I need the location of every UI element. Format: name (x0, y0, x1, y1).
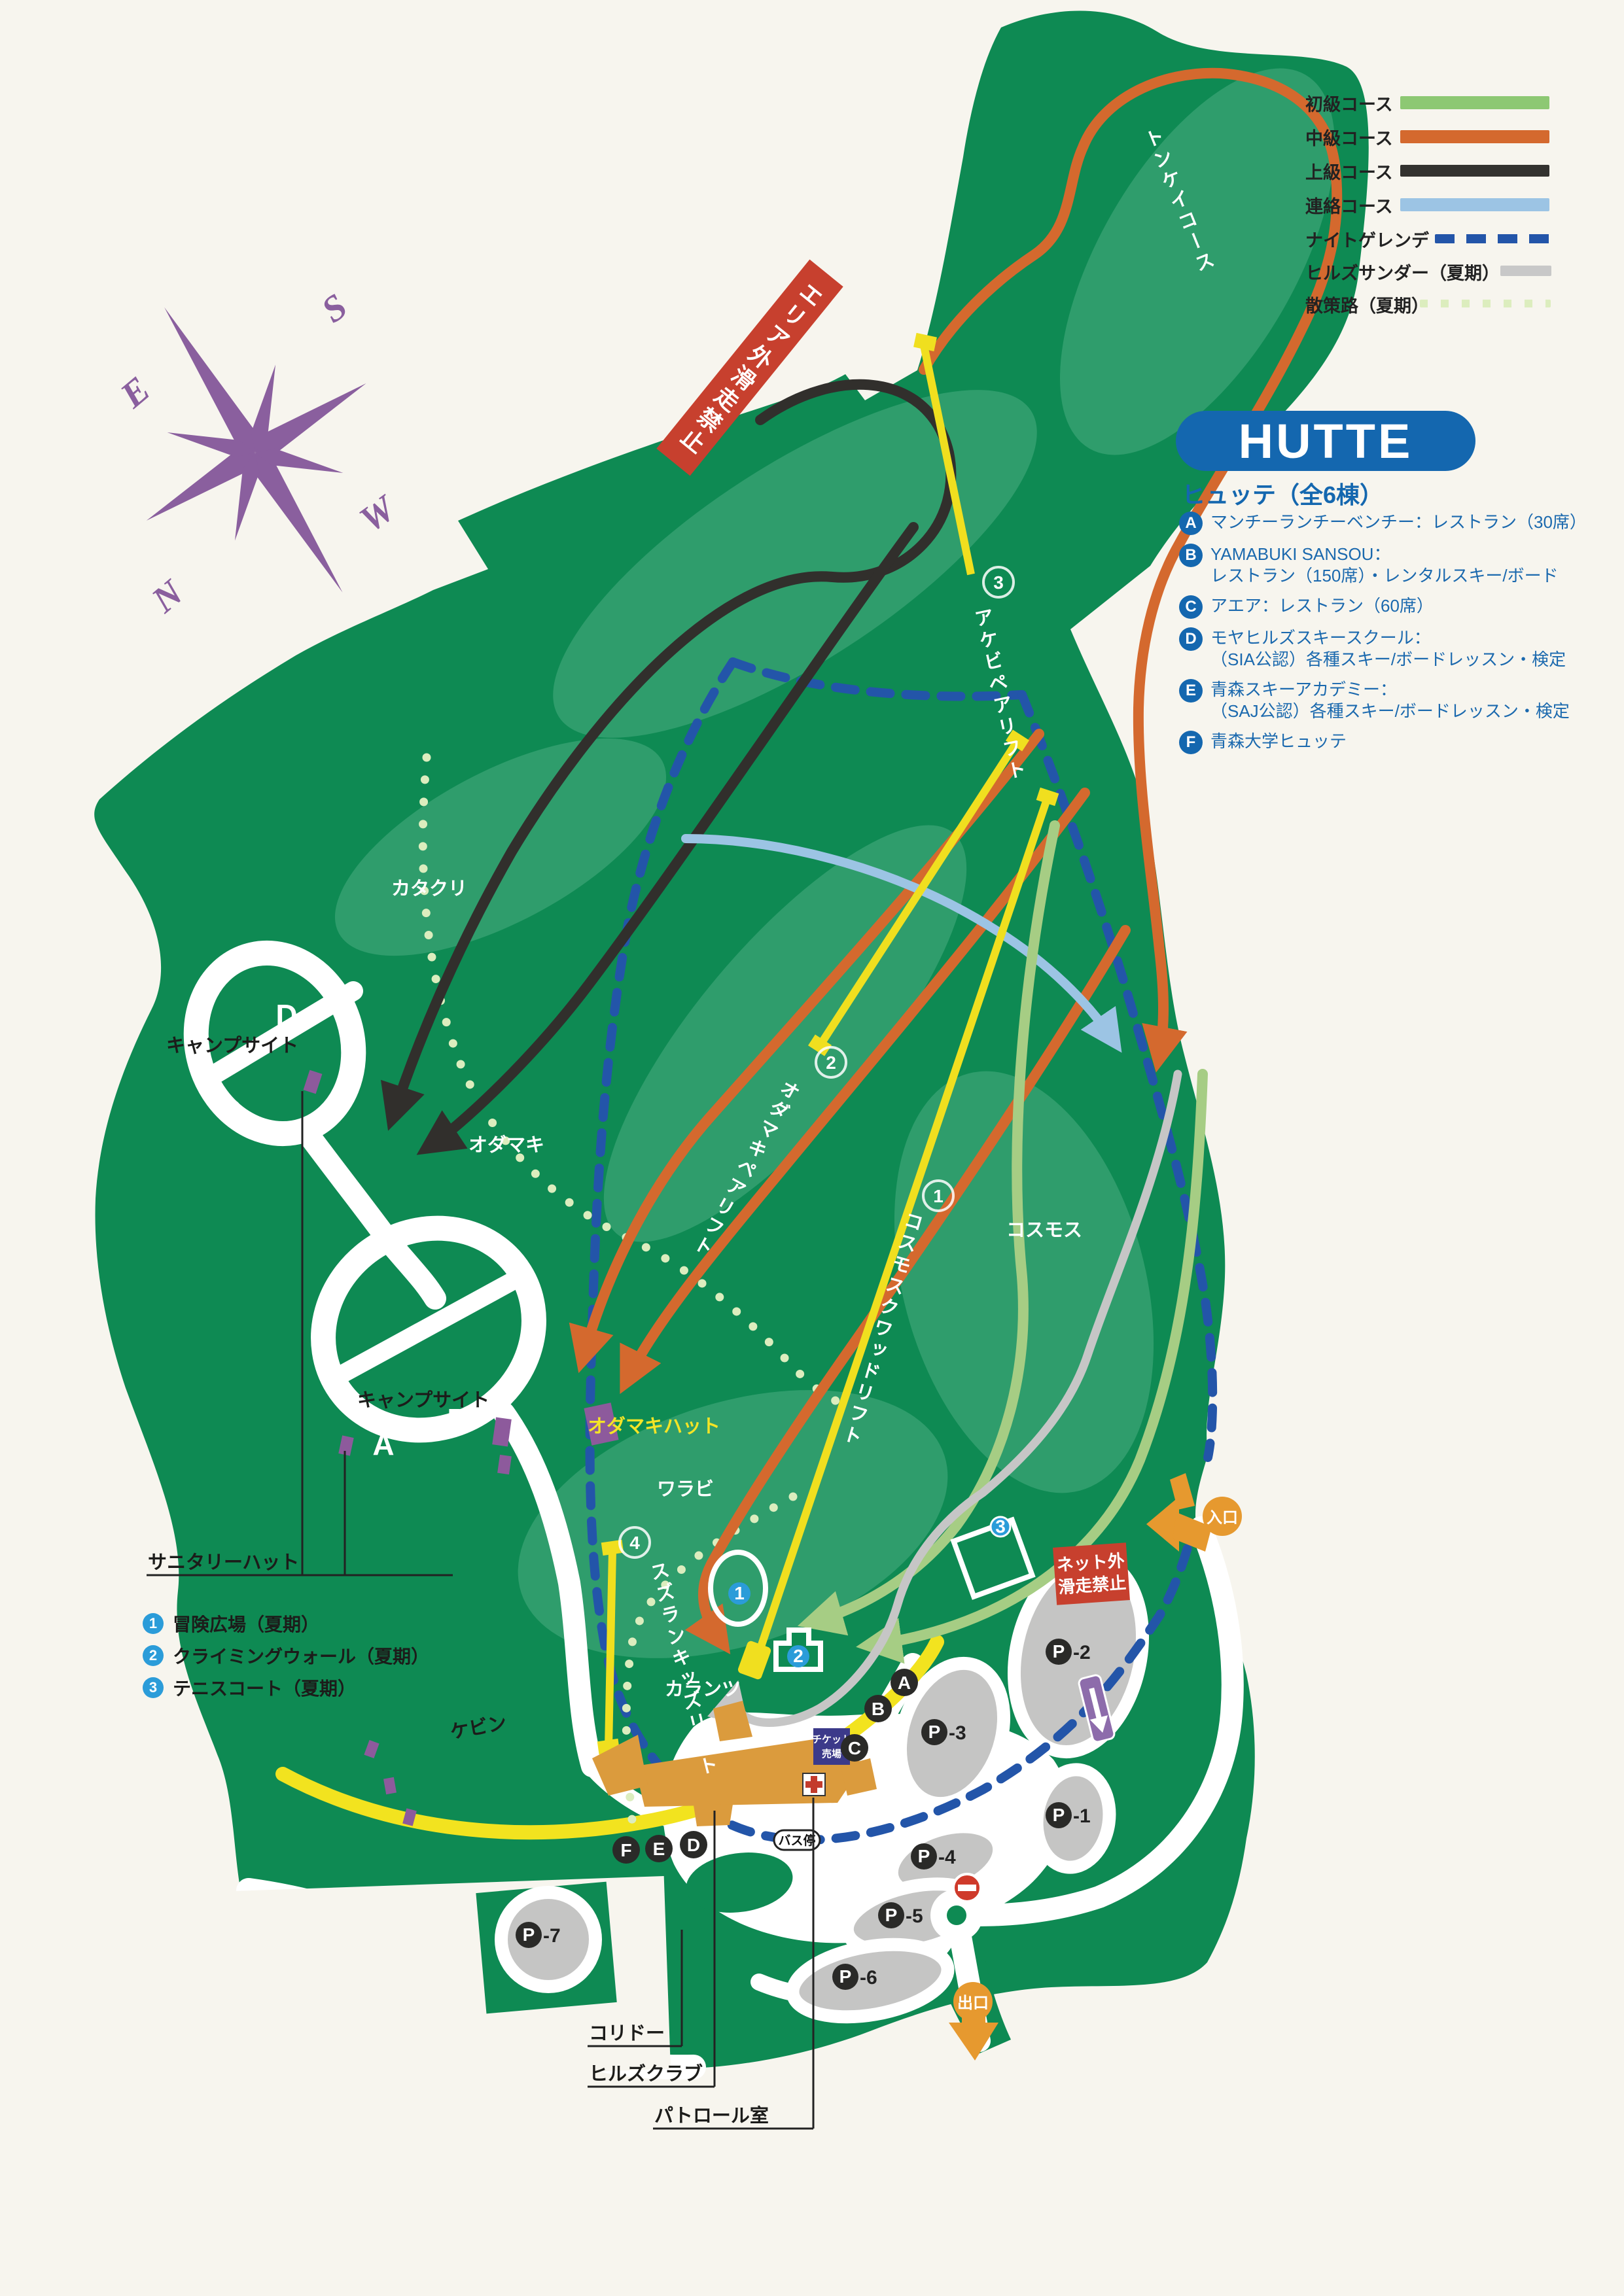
svg-text:1: 1 (933, 1186, 944, 1206)
legend-bar-intermediate (1400, 130, 1549, 143)
svg-text:S: S (314, 286, 355, 330)
legend-row: 初級コース (1305, 93, 1393, 113)
hutte-item-f: F青森大学ヒュッテ (1179, 731, 1611, 754)
camp-letter-a: A (372, 1427, 394, 1461)
svg-text:2: 2 (793, 1646, 803, 1666)
svg-text:1: 1 (734, 1583, 745, 1603)
svg-text:W: W (352, 487, 404, 540)
svg-text:3: 3 (995, 1516, 1006, 1537)
label-cosmos-area: コスモス (1006, 1220, 1082, 1241)
hutte-item-d: Dモヤヒルズスキースクール：（SIA公認）各種スキー/ボードレッスン・検定 (1179, 627, 1611, 670)
svg-text:P: P (839, 1966, 852, 1987)
no-entry-sign (953, 1874, 981, 1902)
summer-facility-list: 1冒険広場（夏期） 2クライミングウォール（夏期） 3テニスコート（夏期） (143, 1610, 429, 1707)
legend-bar-beginner (1400, 96, 1549, 109)
hutte-item-a: Aマンチーランチーベンチー：レストラン（30席） (1179, 512, 1611, 535)
svg-text:-2: -2 (1073, 1642, 1091, 1663)
label-odamaki-area: オダマキ (468, 1134, 544, 1156)
ski-resort-map-page: 3 2 1 4 1 2 3 チケット 売場 バス停 A (0, 0, 1624, 2296)
no-net-skiing-sign: ネット外 滑走禁止 (1053, 1542, 1130, 1605)
hutte-item-e: E青森スキーアカデミー：（SAJ公認）各種スキー/ボードレッスン・検定 (1179, 679, 1611, 722)
svg-text:-5: -5 (906, 1905, 923, 1927)
svg-text:P: P (928, 1722, 941, 1742)
legend-bar-strolling (1420, 300, 1551, 307)
hutte-title-banner: HUTTE (1176, 411, 1475, 471)
camp-letter-c: C (219, 1094, 241, 1128)
svg-text:P: P (523, 1924, 535, 1945)
label-sanitary-hut: サニタリーハット (148, 1552, 299, 1573)
label-karantsu: カランツ (665, 1679, 741, 1700)
svg-text:D: D (687, 1835, 700, 1855)
map-canvas: 3 2 1 4 1 2 3 チケット 売場 バス停 A (0, 0, 1624, 2296)
legend-bar-night (1435, 234, 1553, 243)
hutte-item-c: Cアエア：レストラン（60席） (1179, 595, 1611, 619)
badge-b: B (1179, 544, 1203, 567)
label-corridor: コリドー (589, 2023, 665, 2044)
legend-row: 連絡コース (1305, 195, 1393, 215)
legend-row: ヒルズサンダー（夏期） (1305, 262, 1500, 281)
legend-bar-thunder (1500, 266, 1551, 276)
roundabout-center (947, 1905, 966, 1925)
svg-text:売場: 売場 (822, 1748, 841, 1760)
legend-row: 中級コース (1305, 127, 1393, 147)
label-odamaki-hut: オダマキハット (588, 1415, 720, 1437)
hutte-item-b: BYAMABUKI SANSOU：レストラン（150席）・レンタルスキー/ボード (1179, 544, 1611, 587)
summer-item-1: 1冒険広場（夏期） (143, 1610, 429, 1637)
svg-text:C: C (848, 1738, 861, 1758)
svg-text:-3: -3 (949, 1722, 966, 1744)
bottom-left-zone (213, 1876, 671, 2085)
legend-row: 上級コース (1305, 161, 1393, 181)
badge-c: C (1179, 595, 1203, 619)
label-hills-club: ヒルズクラブ (589, 2062, 703, 2085)
svg-text:N: N (144, 572, 192, 621)
svg-text:出口: 出口 (957, 1994, 989, 2012)
svg-text:P: P (918, 1846, 930, 1866)
badge-d: D (1179, 627, 1203, 651)
label-warabi: ワラビ (657, 1478, 714, 1500)
svg-text:バス停: バス停 (778, 1833, 815, 1848)
badge-e: E (1179, 679, 1203, 703)
summer-item-3: 3テニスコート（夏期） (143, 1675, 429, 1701)
svg-text:E: E (113, 369, 158, 416)
camp-letter-d: D (275, 998, 297, 1032)
svg-text:-1: -1 (1073, 1805, 1091, 1827)
svg-text:3: 3 (993, 572, 1004, 593)
legend-bar-link (1400, 198, 1549, 211)
svg-text:-6: -6 (860, 1967, 877, 1989)
svg-text:B: B (872, 1699, 885, 1719)
svg-text:入口: 入口 (1207, 1509, 1238, 1527)
svg-text:E: E (653, 1839, 665, 1859)
svg-text:F: F (620, 1840, 631, 1860)
svg-text:P: P (1053, 1805, 1065, 1825)
compass-rose: S E W N (56, 238, 453, 661)
camp-letter-b: B (447, 1402, 468, 1436)
legend-row: 散策路（夏期） (1305, 294, 1429, 314)
label-katakuri: カタクリ (391, 878, 467, 899)
legend-bar-advanced (1400, 165, 1549, 177)
label-campsite-upper: キャンプサイト (166, 1035, 298, 1056)
badge-f: F (1179, 731, 1203, 754)
label-patrol-room: パトロール室 (654, 2104, 769, 2127)
hutte-subtitle: ヒュッテ（全6棟） (1182, 476, 1383, 510)
svg-text:P: P (885, 1905, 898, 1925)
svg-text:2: 2 (826, 1052, 836, 1073)
label-campsite-lower: キャンプサイト (357, 1389, 489, 1411)
svg-text:-7: -7 (543, 1925, 561, 1947)
svg-text:-4: -4 (938, 1847, 956, 1868)
first-aid-cross-icon (803, 1773, 825, 1796)
svg-text:4: 4 (629, 1533, 640, 1553)
badge-a: A (1179, 512, 1203, 535)
hutte-list: Aマンチーランチーベンチー：レストラン（30席） BYAMABUKI SANSO… (1179, 512, 1611, 763)
svg-text:A: A (898, 1673, 911, 1693)
legend-row: ナイトゲレンデ (1305, 229, 1429, 249)
summer-item-2: 2クライミングウォール（夏期） (143, 1643, 429, 1669)
svg-text:P: P (1053, 1641, 1065, 1661)
